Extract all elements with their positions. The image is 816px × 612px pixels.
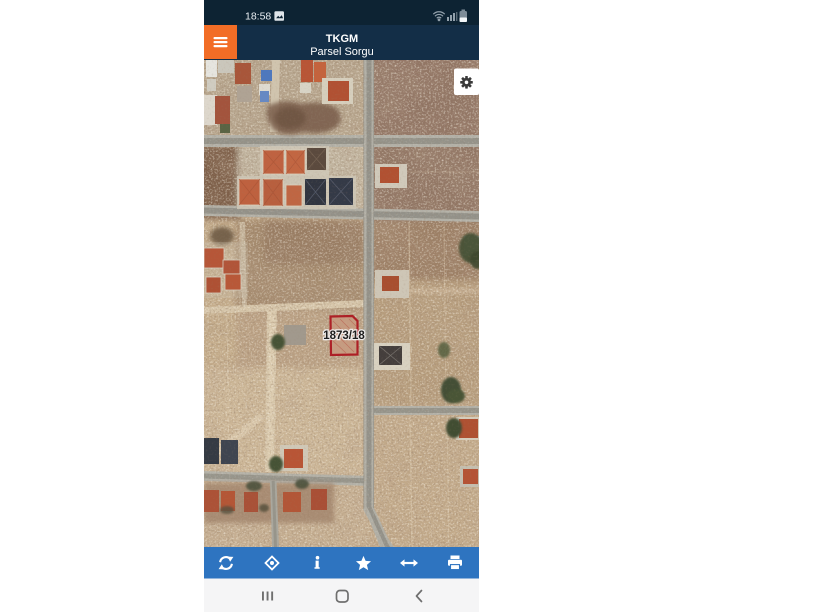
svg-text:18:58: 18:58 (245, 11, 271, 23)
svg-text:Parsel Sorgu: Parsel Sorgu (310, 46, 374, 58)
svg-text:1873/18: 1873/18 (323, 330, 365, 342)
svg-text:TKGM: TKGM (326, 33, 358, 45)
